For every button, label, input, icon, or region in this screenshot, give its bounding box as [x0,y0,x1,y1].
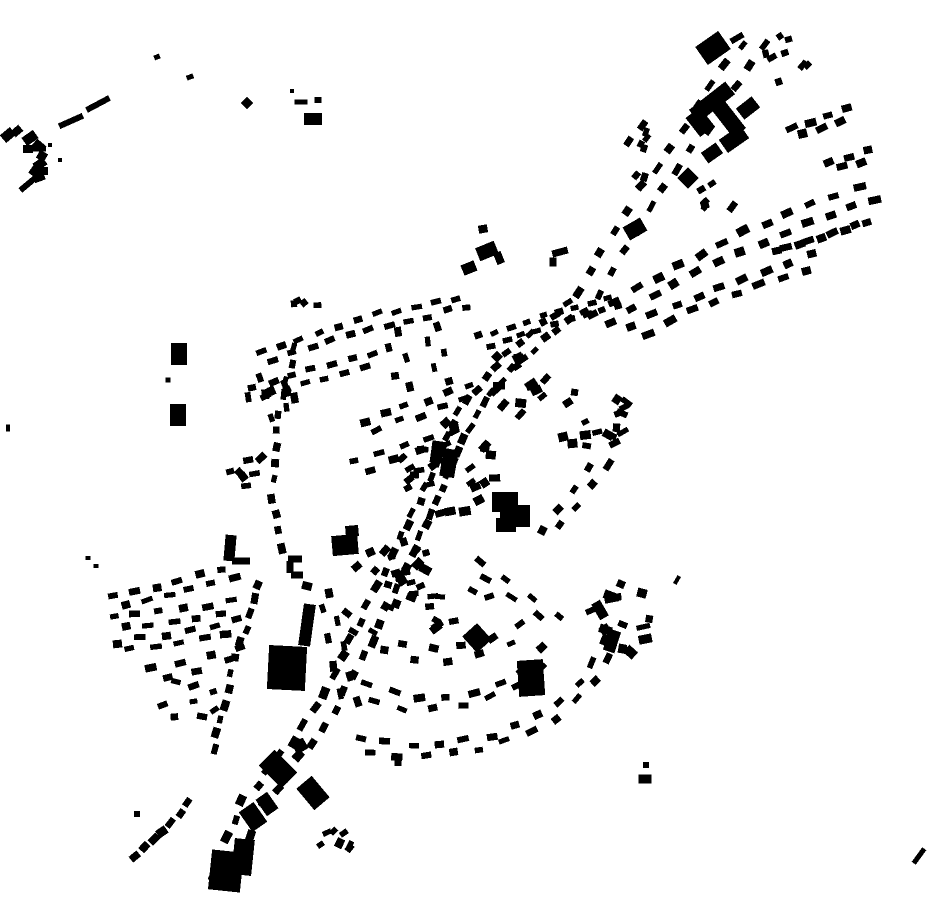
building [611,394,622,406]
building [367,350,379,359]
building [334,323,344,332]
building [636,623,651,631]
building [645,309,658,320]
building [695,248,709,261]
building [744,59,756,72]
building [391,308,402,316]
building [166,378,171,383]
building [517,659,545,697]
building [759,38,770,51]
building [315,328,325,337]
building [202,602,215,611]
building [836,162,848,171]
building [176,808,187,819]
building [417,497,426,506]
building [422,314,432,321]
building [530,346,539,355]
building [827,192,839,201]
building [731,290,742,299]
building [409,743,419,749]
building [274,410,281,419]
building [465,463,476,473]
building [758,238,771,249]
building [502,336,513,344]
building [110,613,119,620]
building [652,162,663,175]
building [241,97,254,110]
building [326,360,338,369]
building [301,581,313,591]
building [515,338,525,348]
building [449,748,459,757]
building [815,123,829,134]
building [223,535,236,562]
building [300,379,311,387]
building [370,425,382,435]
building [506,639,516,647]
building [183,585,194,593]
building [351,561,363,573]
building [174,659,186,668]
building [527,382,535,391]
building [415,582,425,591]
building [153,54,160,61]
building [515,408,527,420]
building [553,696,564,707]
building [399,441,410,450]
building [368,697,380,705]
building [394,416,404,424]
building [318,721,329,733]
building [295,100,308,105]
building [332,705,342,716]
building [575,678,585,688]
building [355,734,366,742]
building [572,286,585,300]
building [554,307,564,316]
building [349,457,359,464]
building [592,428,603,436]
building [379,738,390,745]
building [121,622,131,631]
building [144,663,157,673]
building [536,641,548,653]
building [570,304,579,311]
building [373,449,385,457]
building [712,256,725,268]
building [478,224,488,233]
building [570,484,579,494]
building [718,58,731,72]
building [822,111,833,119]
building [525,726,539,737]
building [567,439,578,449]
building [345,330,356,339]
building [457,432,468,445]
building [780,207,794,219]
building [348,354,358,362]
building [538,317,548,327]
building [853,182,867,192]
building [245,607,255,619]
building [206,650,216,659]
building [571,388,579,396]
building [134,634,145,640]
building [777,273,789,282]
building [467,586,478,595]
building [497,398,510,412]
figure-ground-map [0,0,930,924]
building [359,650,369,661]
building [587,299,597,307]
building [607,266,617,277]
building [383,580,392,589]
building [581,418,590,426]
building [365,547,376,558]
building [150,643,162,650]
building [337,649,350,662]
building [434,508,446,517]
building [182,797,193,808]
building [58,113,84,129]
building [841,103,853,113]
building [307,343,319,352]
building [345,525,359,537]
building [480,445,490,452]
building [630,281,644,293]
building [224,655,234,663]
building [227,669,234,678]
building [232,558,250,565]
building [324,335,336,345]
building [587,656,597,669]
building [552,503,564,515]
building [86,556,91,560]
building [353,315,363,324]
building [252,580,262,591]
building [516,331,526,339]
building [712,282,725,292]
building [444,377,453,386]
building [597,306,606,314]
building [663,143,675,155]
building [641,329,656,340]
building [287,561,294,573]
building [433,321,442,332]
building [409,591,419,597]
building [108,592,119,600]
building [272,509,282,519]
building [152,583,162,592]
building [782,258,794,269]
building [803,236,815,245]
building [779,228,792,238]
building [735,224,750,238]
building [603,458,615,472]
building [784,35,793,43]
building [211,727,222,739]
building [216,610,227,617]
building [243,456,254,464]
building [730,80,742,93]
building [142,622,154,628]
building [209,622,220,630]
building [555,520,565,530]
building [603,652,613,664]
building [380,646,389,655]
building [362,325,374,335]
building [319,604,327,614]
building [686,304,699,314]
building [625,303,637,314]
building [679,123,690,135]
building [427,472,436,483]
building [403,483,413,492]
building [407,507,416,518]
building [738,40,748,50]
building [473,409,482,419]
building [491,351,503,363]
building [751,278,766,289]
building [196,712,207,720]
building [677,167,698,188]
building [406,579,416,586]
building [289,359,297,369]
building [639,775,652,784]
building [704,79,715,92]
building [785,122,799,133]
building [217,566,226,573]
building [170,713,178,721]
building [250,593,259,605]
building [441,694,450,701]
building [442,386,454,397]
building [381,567,390,577]
building [58,158,62,162]
building [273,426,280,433]
building [625,321,636,331]
building [708,297,719,307]
building [391,753,403,761]
building [617,620,628,629]
building [425,336,431,346]
building [30,147,46,152]
building [199,634,212,642]
building [780,49,789,58]
building [457,735,470,743]
building [48,143,52,147]
building [619,244,630,255]
building [329,661,337,672]
building [388,687,401,697]
building [228,573,241,583]
building [715,238,729,249]
building [557,431,568,442]
building [319,376,329,383]
building [589,675,601,687]
building [171,577,183,586]
building [761,218,774,229]
building [439,484,448,493]
building [370,566,380,576]
building [171,678,182,686]
building [430,298,441,306]
building [394,326,402,337]
building [505,592,518,603]
building [582,442,592,449]
building [243,625,252,635]
building [220,630,232,638]
building [696,185,706,195]
building [334,615,341,626]
building [226,468,235,476]
building [191,667,203,675]
building [797,128,808,139]
building [305,365,316,373]
building [506,323,517,331]
building [402,352,410,363]
building [495,679,507,688]
building [395,573,404,582]
building [863,145,873,154]
building [290,89,294,93]
building [453,406,463,417]
building [562,397,574,408]
building [368,635,380,649]
building [365,749,376,755]
building [255,347,267,356]
building [195,569,206,579]
building [425,603,434,610]
building [398,640,408,648]
building [341,607,353,618]
building [225,684,235,694]
building [241,482,251,489]
building [437,402,449,410]
building [693,292,705,303]
building [157,700,169,709]
building [484,592,495,601]
building [472,494,485,506]
building [324,633,332,644]
building [291,572,303,579]
building [276,341,287,351]
building [849,220,860,230]
building [458,702,468,708]
building [522,319,531,327]
building [587,479,598,490]
building [667,278,680,290]
building [572,693,582,704]
building [441,348,448,356]
building [403,318,414,325]
building [760,265,774,277]
building [220,699,231,712]
building [500,574,511,584]
building [134,811,140,817]
building [231,615,242,624]
building [211,743,220,755]
building [124,645,135,652]
building [912,847,927,865]
building [855,157,867,168]
building [297,718,308,732]
building [623,136,634,148]
building [225,597,237,604]
building [834,116,847,127]
building [165,817,176,829]
building [220,830,233,845]
building [540,373,552,385]
building [405,381,414,392]
building [249,470,261,477]
building [247,384,256,392]
building [775,32,784,41]
building [550,258,557,267]
building [296,776,329,810]
building [468,688,481,698]
building [565,315,576,323]
building [277,543,287,555]
building [801,266,812,276]
building [426,481,435,488]
building [283,403,289,412]
building [399,401,409,409]
building [184,626,196,634]
building [267,645,307,691]
building [353,696,363,708]
building [324,588,333,599]
building [474,747,483,754]
building [501,348,512,358]
building [527,593,538,603]
building [595,289,604,300]
building [433,452,442,460]
building [774,77,783,86]
building [431,363,438,373]
building [735,273,749,285]
building [652,272,665,284]
building [94,564,99,568]
building [385,343,393,353]
building [339,828,349,837]
building [209,688,218,696]
building [484,691,496,701]
building [316,840,325,849]
building [128,587,140,596]
building [380,408,392,418]
building [413,693,426,702]
building [701,143,723,164]
building [462,304,471,311]
building [421,751,432,759]
building [579,430,591,440]
building [533,327,542,334]
building [121,600,131,610]
building [272,442,281,452]
building [490,329,499,337]
building [370,579,383,593]
building [482,371,493,382]
building [474,556,486,568]
building [868,195,882,205]
building [410,656,419,664]
building [780,243,793,252]
building [673,575,681,585]
building [458,506,471,517]
building [657,182,668,193]
building [823,157,835,168]
